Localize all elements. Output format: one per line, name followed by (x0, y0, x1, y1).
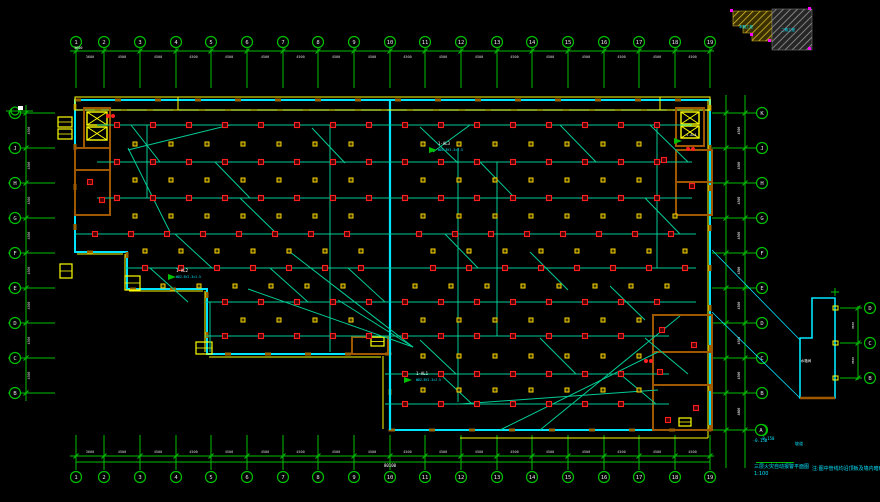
detector-device (259, 300, 264, 305)
grid-bubble-label: 18 (672, 40, 679, 46)
speaker-device (529, 318, 533, 322)
hydrant-symbol (404, 377, 412, 383)
grid-bubble-label: H (13, 181, 16, 187)
grid-bubble-label: G (760, 216, 763, 222)
dim-text: 4500 (189, 450, 197, 454)
drawing-note: 注:图中管线均沿顶板及墙内暗敷设 (812, 466, 880, 472)
detector-device (143, 266, 148, 271)
detector-device (359, 266, 364, 271)
speaker-device (233, 284, 237, 288)
grid-bubble-label: J (13, 146, 16, 152)
speaker-device (629, 284, 633, 288)
dim-text: 4500 (617, 55, 625, 59)
detector-device (403, 300, 408, 305)
speaker-device (637, 318, 641, 322)
detector-device (611, 266, 616, 271)
speaker-device (493, 388, 497, 392)
speaker-device (349, 214, 353, 218)
detector-device (475, 196, 480, 201)
detector-device (129, 232, 134, 237)
detector-device (273, 232, 278, 237)
grid-bubble-label: 19 (707, 475, 714, 481)
dim-text: 4500 (510, 450, 518, 454)
speaker-device (601, 178, 605, 182)
speaker-device (457, 388, 461, 392)
grid-bubble-label: 12 (458, 475, 465, 481)
speaker-device (637, 388, 641, 392)
speaker-device (287, 249, 291, 253)
detector-device (403, 196, 408, 201)
dim-text: 4500 (332, 450, 340, 454)
drawing-scale: 1:100 (754, 471, 768, 477)
dim-text: 4500 (439, 450, 447, 454)
detector-device (575, 266, 580, 271)
speaker-device (493, 178, 497, 182)
speaker-device (313, 318, 317, 322)
core-wall (75, 170, 110, 215)
wire-branch (128, 148, 170, 232)
detector-device (619, 300, 624, 305)
dim-text: 4500 (653, 450, 661, 454)
keyplan-corner-tick (730, 9, 733, 12)
speaker-device (179, 249, 183, 253)
speaker-device (539, 249, 543, 253)
detector-device (583, 372, 588, 377)
speaker-device (305, 284, 309, 288)
detector-device (694, 406, 699, 411)
detector-device (660, 328, 665, 333)
detector-device (547, 300, 552, 305)
speaker-device (143, 249, 147, 253)
detector-device (669, 232, 674, 237)
dim-text: 4500 (189, 55, 197, 59)
grid-bubble-label: 6 (245, 40, 248, 46)
core-wall (75, 148, 110, 170)
detector-device (503, 266, 508, 271)
speaker-device (521, 284, 525, 288)
grid-bubble-label: 19 (707, 40, 714, 46)
dim-text: 4500 (154, 55, 162, 59)
detector-device (295, 300, 300, 305)
speaker-device (169, 178, 173, 182)
annotation-text: WDZ-BYJ-3×2.5 (416, 378, 441, 382)
grid-bubble-label: 7 (281, 40, 284, 46)
grid-bubble-label: 16 (601, 40, 608, 46)
speaker-device (529, 178, 533, 182)
dim-text: 4500 (27, 197, 31, 205)
speaker-device (241, 178, 245, 182)
speaker-device (601, 318, 605, 322)
speaker-device (313, 214, 317, 218)
detector-device (237, 232, 242, 237)
keyplan-corner-tick (750, 33, 753, 36)
dim-text: 4500 (510, 55, 518, 59)
dim-text: 4500 (582, 55, 590, 59)
dim-text: 4500 (737, 372, 741, 380)
speaker-device (169, 214, 173, 218)
grid-bubble-label: 18 (672, 475, 679, 481)
dim-text: 4500 (27, 127, 31, 135)
speaker-device (565, 318, 569, 322)
detector-device (539, 266, 544, 271)
detector-device (187, 160, 192, 165)
speaker-device (565, 354, 569, 358)
wire-branch (348, 268, 385, 302)
wire-branch (240, 198, 277, 234)
speaker-device (457, 178, 461, 182)
speaker-device (575, 249, 579, 253)
wire-branch (440, 374, 472, 404)
detector-device (475, 372, 480, 377)
detector-device (259, 334, 264, 339)
detector-device (223, 160, 228, 165)
dim-text: 4500 (617, 450, 625, 454)
dim-text: 4500 (118, 450, 126, 454)
detector-device (331, 160, 336, 165)
detector-device (690, 184, 695, 189)
grid-bubble-label: 11 (422, 475, 429, 481)
core-wall (676, 150, 712, 182)
detector-device (662, 158, 667, 163)
detector-device (367, 123, 372, 128)
dim-text: 4500 (403, 55, 411, 59)
wire-branch (445, 234, 478, 268)
exit-light (644, 359, 648, 363)
detector-device (331, 123, 336, 128)
detector-device (223, 196, 228, 201)
dim-text: 4500 (118, 55, 126, 59)
core-wall (653, 385, 712, 430)
detector-device (439, 300, 444, 305)
grid-bubble-label: D (760, 321, 763, 327)
key-plan: 本期工程二期工程 (730, 7, 812, 50)
speaker-device (529, 214, 533, 218)
keyplan-corner-tick (808, 47, 811, 50)
speaker-device (565, 214, 569, 218)
speaker-device (467, 249, 471, 253)
speaker-device (313, 178, 317, 182)
dim-text: 4500 (737, 302, 741, 310)
speaker-device (457, 142, 461, 146)
annotation-text: WDZ-BYJ-3×2.5 (176, 275, 201, 279)
dim-text: 4800 (737, 408, 741, 416)
detector-device (619, 402, 624, 407)
dim-text: 4500 (851, 357, 855, 364)
speaker-device (647, 249, 651, 253)
wire-branch (540, 338, 576, 374)
speaker-device (493, 214, 497, 218)
speaker-device (133, 142, 137, 146)
grid-bubble-label: F (13, 251, 16, 257)
detector-device (619, 160, 624, 165)
grid-bubble-label: 12 (458, 40, 465, 46)
detector-device (287, 266, 292, 271)
speaker-device (133, 214, 137, 218)
detector-device (367, 160, 372, 165)
detector-device (547, 196, 552, 201)
detector-device (692, 343, 697, 348)
speaker-device (215, 249, 219, 253)
detector-device (115, 196, 120, 201)
total-dim-text: 80100 (384, 463, 397, 468)
detector-device (403, 123, 408, 128)
grid-bubble-label: C (868, 341, 871, 347)
core-wall (653, 352, 712, 385)
dim-text: 4500 (582, 450, 590, 454)
speaker-device (673, 214, 677, 218)
speaker-device (421, 214, 425, 218)
dim-text: 4500 (403, 450, 411, 454)
exit-light (111, 114, 115, 118)
detector-device (547, 160, 552, 165)
speaker-device (529, 388, 533, 392)
dim-text: 4500 (851, 322, 855, 329)
speaker-device (241, 142, 245, 146)
detector-device (439, 402, 444, 407)
detector-device (417, 232, 422, 237)
dim-text: 4500 (368, 450, 376, 454)
detector-device (251, 266, 256, 271)
dim-text: 4500 (27, 337, 31, 345)
grid-bubble-label: 5 (209, 475, 212, 481)
exit-light (649, 359, 653, 363)
detector-device (619, 372, 624, 377)
leader-line (712, 250, 800, 340)
detector-device (683, 266, 688, 271)
dim-text: 4500 (296, 450, 304, 454)
core-wall (676, 108, 704, 146)
detector-device (475, 160, 480, 165)
detector-device (467, 266, 472, 271)
grid-bubble-label: E (760, 286, 763, 292)
speaker-device (205, 178, 209, 182)
detector-device (323, 266, 328, 271)
speaker-device (457, 318, 461, 322)
detector-device (489, 232, 494, 237)
dim-text: 4500 (737, 127, 741, 135)
wire-branch (645, 338, 688, 374)
dim-text: 4500 (688, 55, 696, 59)
dim-text: 4500 (261, 55, 269, 59)
speaker-device (611, 249, 615, 253)
grid-bubble-label: 14 (529, 475, 536, 481)
exit-light (106, 114, 110, 118)
detector-device (223, 123, 228, 128)
speaker-device (565, 178, 569, 182)
dim-text: 4500 (737, 232, 741, 240)
dim-text: 4500 (653, 55, 661, 59)
annotation-text: 1-AL4 (686, 133, 697, 137)
speaker-device (349, 318, 353, 322)
grid-bubble-label: 11 (422, 40, 429, 46)
speaker-device (205, 214, 209, 218)
wire-branch (150, 268, 188, 302)
detector-device (619, 196, 624, 201)
speaker-device (637, 214, 641, 218)
detector-device (431, 266, 436, 271)
wire-branch (290, 252, 413, 347)
annotation-text: 1-AL1 (416, 371, 429, 376)
exit-light (686, 147, 690, 151)
dim-text: 4500 (261, 450, 269, 454)
dim-text: 4500 (27, 162, 31, 170)
speaker-device (169, 142, 173, 146)
dim-text: 4500 (737, 267, 741, 275)
annotation-text: 1-AL3 (438, 141, 451, 146)
dim-text: 4500 (296, 55, 304, 59)
detector-device (439, 160, 444, 165)
detector-device (655, 196, 660, 201)
dim-text: 3600 (86, 55, 94, 59)
detector-device (647, 266, 652, 271)
speaker-device (485, 284, 489, 288)
speaker-device (529, 142, 533, 146)
dim-text: 4500 (225, 55, 233, 59)
speaker-device (277, 178, 281, 182)
detector-device (439, 196, 444, 201)
speaker-device (421, 318, 425, 322)
detector-device (475, 123, 480, 128)
detector-device (151, 123, 156, 128)
detector-device (439, 372, 444, 377)
detector-device (187, 196, 192, 201)
speaker-device (457, 354, 461, 358)
grid-bubble-label: 16 (601, 475, 608, 481)
grid-bubble-label: 2 (102, 475, 105, 481)
dim-text: 4500 (475, 55, 483, 59)
detector-device (655, 123, 660, 128)
wire-branch (338, 300, 413, 347)
speaker-device (637, 354, 641, 358)
detector-device (367, 300, 372, 305)
detector-device (583, 402, 588, 407)
detector-device (633, 232, 638, 237)
dim-text: 4500 (737, 337, 741, 345)
speaker-device (413, 284, 417, 288)
detector-device (403, 160, 408, 165)
keyplan-label: 本期工程 (739, 24, 753, 29)
detector-device (597, 232, 602, 237)
wire-branch (460, 390, 658, 404)
detector-device (439, 123, 444, 128)
drawing-title: 三层火灾自动报警平面图 (754, 464, 809, 470)
detector-device (295, 334, 300, 339)
dim-text: 4500 (332, 55, 340, 59)
top-wall-band (75, 97, 710, 110)
detector-device (115, 123, 120, 128)
cad-drawing-stage: 1360024500345004450054500645007450084500… (0, 0, 880, 502)
speaker-device (449, 284, 453, 288)
speaker-device (277, 318, 281, 322)
detector-device (619, 334, 624, 339)
detector-device (619, 123, 624, 128)
detector-device (331, 196, 336, 201)
section-mark-flag (18, 106, 23, 110)
dim-text: 4500 (546, 450, 554, 454)
detector-device (525, 232, 530, 237)
dim-text: 4500 (546, 55, 554, 59)
dim-text: 4500 (154, 450, 162, 454)
annotation-text: -0.150 (760, 436, 775, 441)
grid-bubble-label: 3 (138, 475, 141, 481)
grid-bubble-label: 7 (281, 475, 284, 481)
detector-device (259, 196, 264, 201)
grid-bubble-label: C (13, 356, 16, 362)
speaker-device (503, 249, 507, 253)
grid-bubble-label: 13 (494, 475, 501, 481)
speaker-device (341, 284, 345, 288)
detector-device (215, 266, 220, 271)
speaker-device (601, 214, 605, 218)
detector-device (583, 196, 588, 201)
wire-branch (610, 286, 645, 320)
grid-bubble-label: F (760, 251, 763, 257)
detector-device (583, 123, 588, 128)
speaker-device (241, 214, 245, 218)
detector-device (511, 123, 516, 128)
detector-device (367, 334, 372, 339)
dim-text: 4500 (439, 55, 447, 59)
floor-plan-svg: 1360024500345004450054500645007450084500… (0, 0, 880, 502)
dim-text: 4500 (27, 372, 31, 380)
detector-device (547, 123, 552, 128)
detector-device (511, 300, 516, 305)
dim-text: 4500 (737, 162, 741, 170)
detector-device (511, 196, 516, 201)
grid-bubble-label: D (868, 306, 871, 312)
speaker-device (133, 178, 137, 182)
detector-device (655, 300, 660, 305)
detector-device (403, 372, 408, 377)
wire-branch (270, 268, 308, 302)
dim-text: 4500 (27, 302, 31, 310)
detector-device (331, 334, 336, 339)
speaker-device (349, 142, 353, 146)
speaker-device (601, 388, 605, 392)
speaker-device (557, 284, 561, 288)
wire-branch (128, 125, 230, 150)
grid-bubble-label: 13 (494, 40, 501, 46)
exit-light (691, 147, 695, 151)
detector-device (511, 402, 516, 407)
hydrant-symbol (168, 274, 176, 280)
speaker-device (313, 142, 317, 146)
detector-device (583, 160, 588, 165)
grid-bubble-label: 2 (102, 40, 105, 46)
detector-device (88, 180, 93, 185)
detector-device (547, 372, 552, 377)
speaker-device (529, 354, 533, 358)
speaker-device (421, 388, 425, 392)
grid-bubble-label: G (13, 216, 16, 222)
grid-bubble-label: 17 (636, 475, 643, 481)
detector-device (583, 300, 588, 305)
detector-device (367, 196, 372, 201)
grid-bubble-label: 9 (352, 40, 355, 46)
detector-device (201, 232, 206, 237)
grid-bubble-label: D (13, 321, 16, 327)
speaker-device (241, 318, 245, 322)
speaker-device (593, 284, 597, 288)
detector-device (259, 160, 264, 165)
detector-device (151, 196, 156, 201)
detector-device (295, 196, 300, 201)
detail-outline (800, 298, 835, 398)
grid-bubble-label: 6 (245, 475, 248, 481)
speaker-device (251, 249, 255, 253)
detail-plan: 水箱间D4500C4500B (800, 288, 876, 398)
grid-bubble-label: 5 (209, 40, 212, 46)
